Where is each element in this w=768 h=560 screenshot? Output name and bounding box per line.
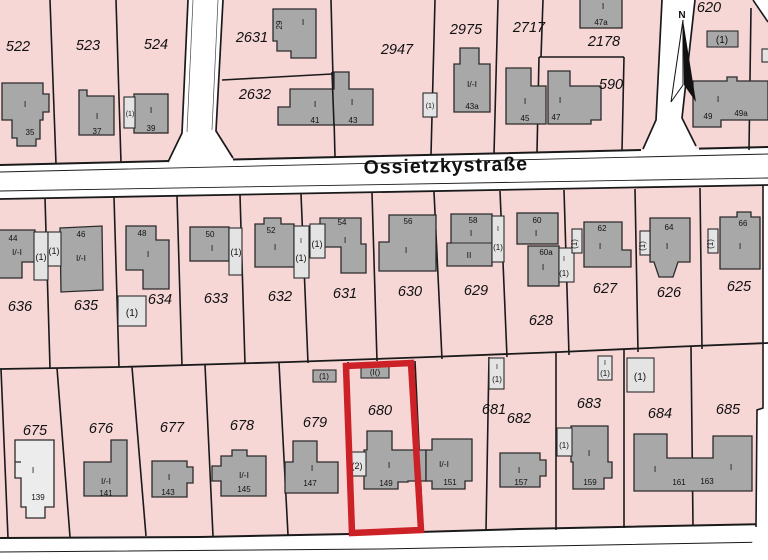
svg-text:49a: 49a [734,109,748,118]
svg-text:(1): (1) [493,243,503,252]
svg-text:45: 45 [521,114,530,123]
svg-text:I/-I: I/-I [467,79,477,89]
svg-text:(1): (1) [319,372,329,381]
svg-text:141: 141 [99,489,113,498]
svg-text:2717: 2717 [512,20,546,36]
svg-text:625: 625 [727,279,752,295]
svg-text:Ossietzkystraße: Ossietzkystraße [363,153,528,179]
svg-text:(1): (1) [492,375,502,384]
svg-text:(2): (2) [352,461,363,471]
svg-text:I: I [604,360,606,367]
svg-text:628: 628 [529,313,553,329]
svg-text:44: 44 [9,234,18,243]
svg-text:I: I [654,464,656,474]
svg-text:627: 627 [593,281,618,297]
svg-text:(1): (1) [126,308,138,319]
svg-text:I: I [32,465,34,475]
svg-text:636: 636 [8,299,33,315]
svg-text:I: I [559,95,561,105]
svg-text:(1): (1) [231,247,242,257]
svg-text:62: 62 [598,224,607,233]
svg-text:2975: 2975 [449,22,483,38]
svg-text:I: I [602,1,604,11]
svg-text:(1): (1) [634,372,646,383]
svg-text:634: 634 [148,292,172,308]
svg-text:I: I [344,235,346,245]
svg-text:143: 143 [161,488,175,497]
svg-text:I: I [518,465,520,475]
svg-text:I/-I: I/-I [239,470,249,480]
svg-text:523: 523 [76,38,100,54]
svg-text:(1): (1) [296,253,307,263]
svg-text:620: 620 [697,0,721,16]
svg-text:681: 681 [482,402,506,418]
svg-text:50: 50 [206,230,215,239]
svg-text:631: 631 [333,286,357,302]
svg-text:629: 629 [464,283,488,299]
svg-text:524: 524 [144,37,168,53]
svg-text:I: I [388,460,390,470]
svg-text:635: 635 [74,298,99,314]
svg-text:(1): (1) [312,239,323,249]
svg-text:I: I [496,364,498,371]
svg-text:161: 161 [672,478,686,487]
svg-text:43: 43 [349,116,358,125]
svg-text:41: 41 [311,116,320,125]
svg-text:58: 58 [469,216,478,225]
svg-text:I: I [730,462,732,472]
svg-text:626: 626 [657,285,682,301]
svg-text:I: I [351,97,353,107]
svg-text:147: 147 [303,479,317,488]
svg-text:I: I [211,243,213,253]
svg-text:I: I [274,242,276,252]
svg-text:(1): (1) [600,369,610,378]
svg-text:677: 677 [160,420,185,436]
svg-text:35: 35 [26,128,35,137]
svg-text:522: 522 [6,39,30,55]
svg-text:151: 151 [443,478,457,487]
svg-text:I: I [24,99,26,109]
svg-text:I: I [666,241,668,251]
svg-text:60: 60 [533,216,542,225]
svg-text:(1): (1) [126,111,135,118]
svg-text:N: N [678,10,685,21]
svg-text:I: I [470,228,472,238]
svg-text:37: 37 [93,127,102,136]
svg-text:I/-I: I/-I [76,253,86,263]
svg-text:I: I [599,241,601,251]
svg-text:145: 145 [237,485,251,494]
svg-text:I: I [405,245,407,255]
svg-text:679: 679 [303,415,327,431]
svg-text:I: I [314,99,316,109]
svg-text:(1): (1) [559,269,569,278]
svg-text:684: 684 [648,406,672,422]
svg-text:49: 49 [704,112,713,121]
svg-text:633: 633 [204,291,228,307]
svg-text:683: 683 [577,396,601,412]
svg-text:(1): (1) [706,239,715,249]
svg-text:I: I [535,228,537,238]
svg-text:48: 48 [138,229,147,238]
svg-text:I: I [168,472,170,482]
svg-text:I: I [96,111,98,121]
svg-text:39: 39 [147,124,156,133]
svg-text:I: I [150,105,152,115]
svg-text:I: I [524,96,526,106]
svg-text:52: 52 [267,226,276,235]
svg-text:630: 630 [398,284,422,300]
svg-text:163: 163 [700,477,714,486]
svg-text:632: 632 [268,289,292,305]
svg-text:I/-I: I/-I [439,459,449,469]
svg-text:54: 54 [338,218,347,227]
svg-text:2632: 2632 [238,87,271,103]
svg-text:685: 685 [716,402,741,418]
svg-text:47a: 47a [594,18,608,27]
svg-text:43a: 43a [465,102,479,111]
svg-text:60a: 60a [539,248,553,257]
svg-text:I: I [588,448,590,458]
svg-text:139: 139 [31,493,45,502]
svg-text:46: 46 [77,230,86,239]
svg-text:2631: 2631 [235,30,268,46]
svg-text:II: II [467,250,472,260]
svg-text:(I(): (I() [370,368,381,377]
svg-text:(1): (1) [426,103,435,110]
svg-text:29: 29 [275,20,284,29]
svg-text:I: I [302,17,304,27]
svg-text:I/-I: I/-I [101,476,111,486]
svg-text:I: I [311,463,313,473]
svg-text:157: 157 [514,478,528,487]
svg-text:2947: 2947 [380,42,414,58]
svg-text:(1): (1) [638,241,647,251]
svg-text:590: 590 [599,77,623,93]
svg-text:I/-I: I/-I [12,247,22,257]
svg-text:66: 66 [739,219,748,228]
svg-text:676: 676 [89,421,114,437]
svg-text:678: 678 [230,418,254,434]
svg-text:I: I [563,256,565,263]
svg-text:149: 149 [379,479,393,488]
svg-text:(1): (1) [559,441,569,450]
svg-text:680: 680 [368,403,392,419]
svg-text:I: I [717,94,719,104]
svg-text:I: I [147,249,149,259]
svg-text:56: 56 [404,217,413,226]
svg-text:675: 675 [23,423,48,439]
svg-text:47: 47 [552,113,561,122]
svg-text:2178: 2178 [587,34,620,50]
svg-text:159: 159 [583,478,597,487]
svg-text:I: I [739,241,741,251]
svg-text:(1): (1) [49,246,60,256]
svg-text:(1): (1) [716,35,728,46]
svg-text:I: I [542,262,544,272]
svg-text:682: 682 [507,411,531,427]
svg-text:(1): (1) [570,239,579,249]
svg-text:I: I [300,238,302,245]
svg-text:64: 64 [665,223,674,232]
svg-text:I: I [497,226,499,233]
svg-text:(1): (1) [36,252,47,262]
